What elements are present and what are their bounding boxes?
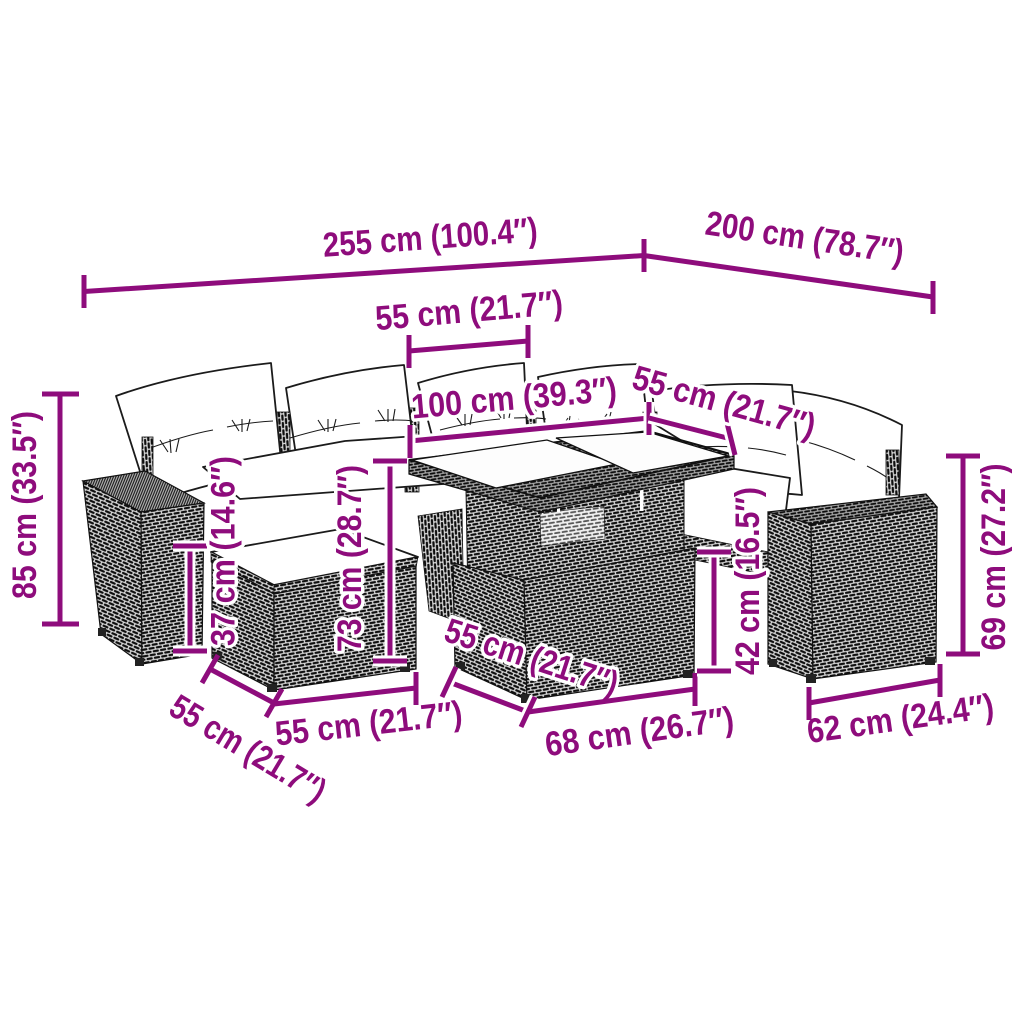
svg-text:73 cm (28.7″): 73 cm (28.7″)	[331, 465, 369, 652]
svg-text:42 cm (16.5″): 42 cm (16.5″)	[729, 487, 767, 675]
svg-text:37 cm (14.6″): 37 cm (14.6″)	[205, 456, 243, 646]
svg-text:85 cm (33.5″): 85 cm (33.5″)	[6, 411, 44, 599]
svg-text:69 cm (27.2″): 69 cm (27.2″)	[975, 464, 1013, 651]
